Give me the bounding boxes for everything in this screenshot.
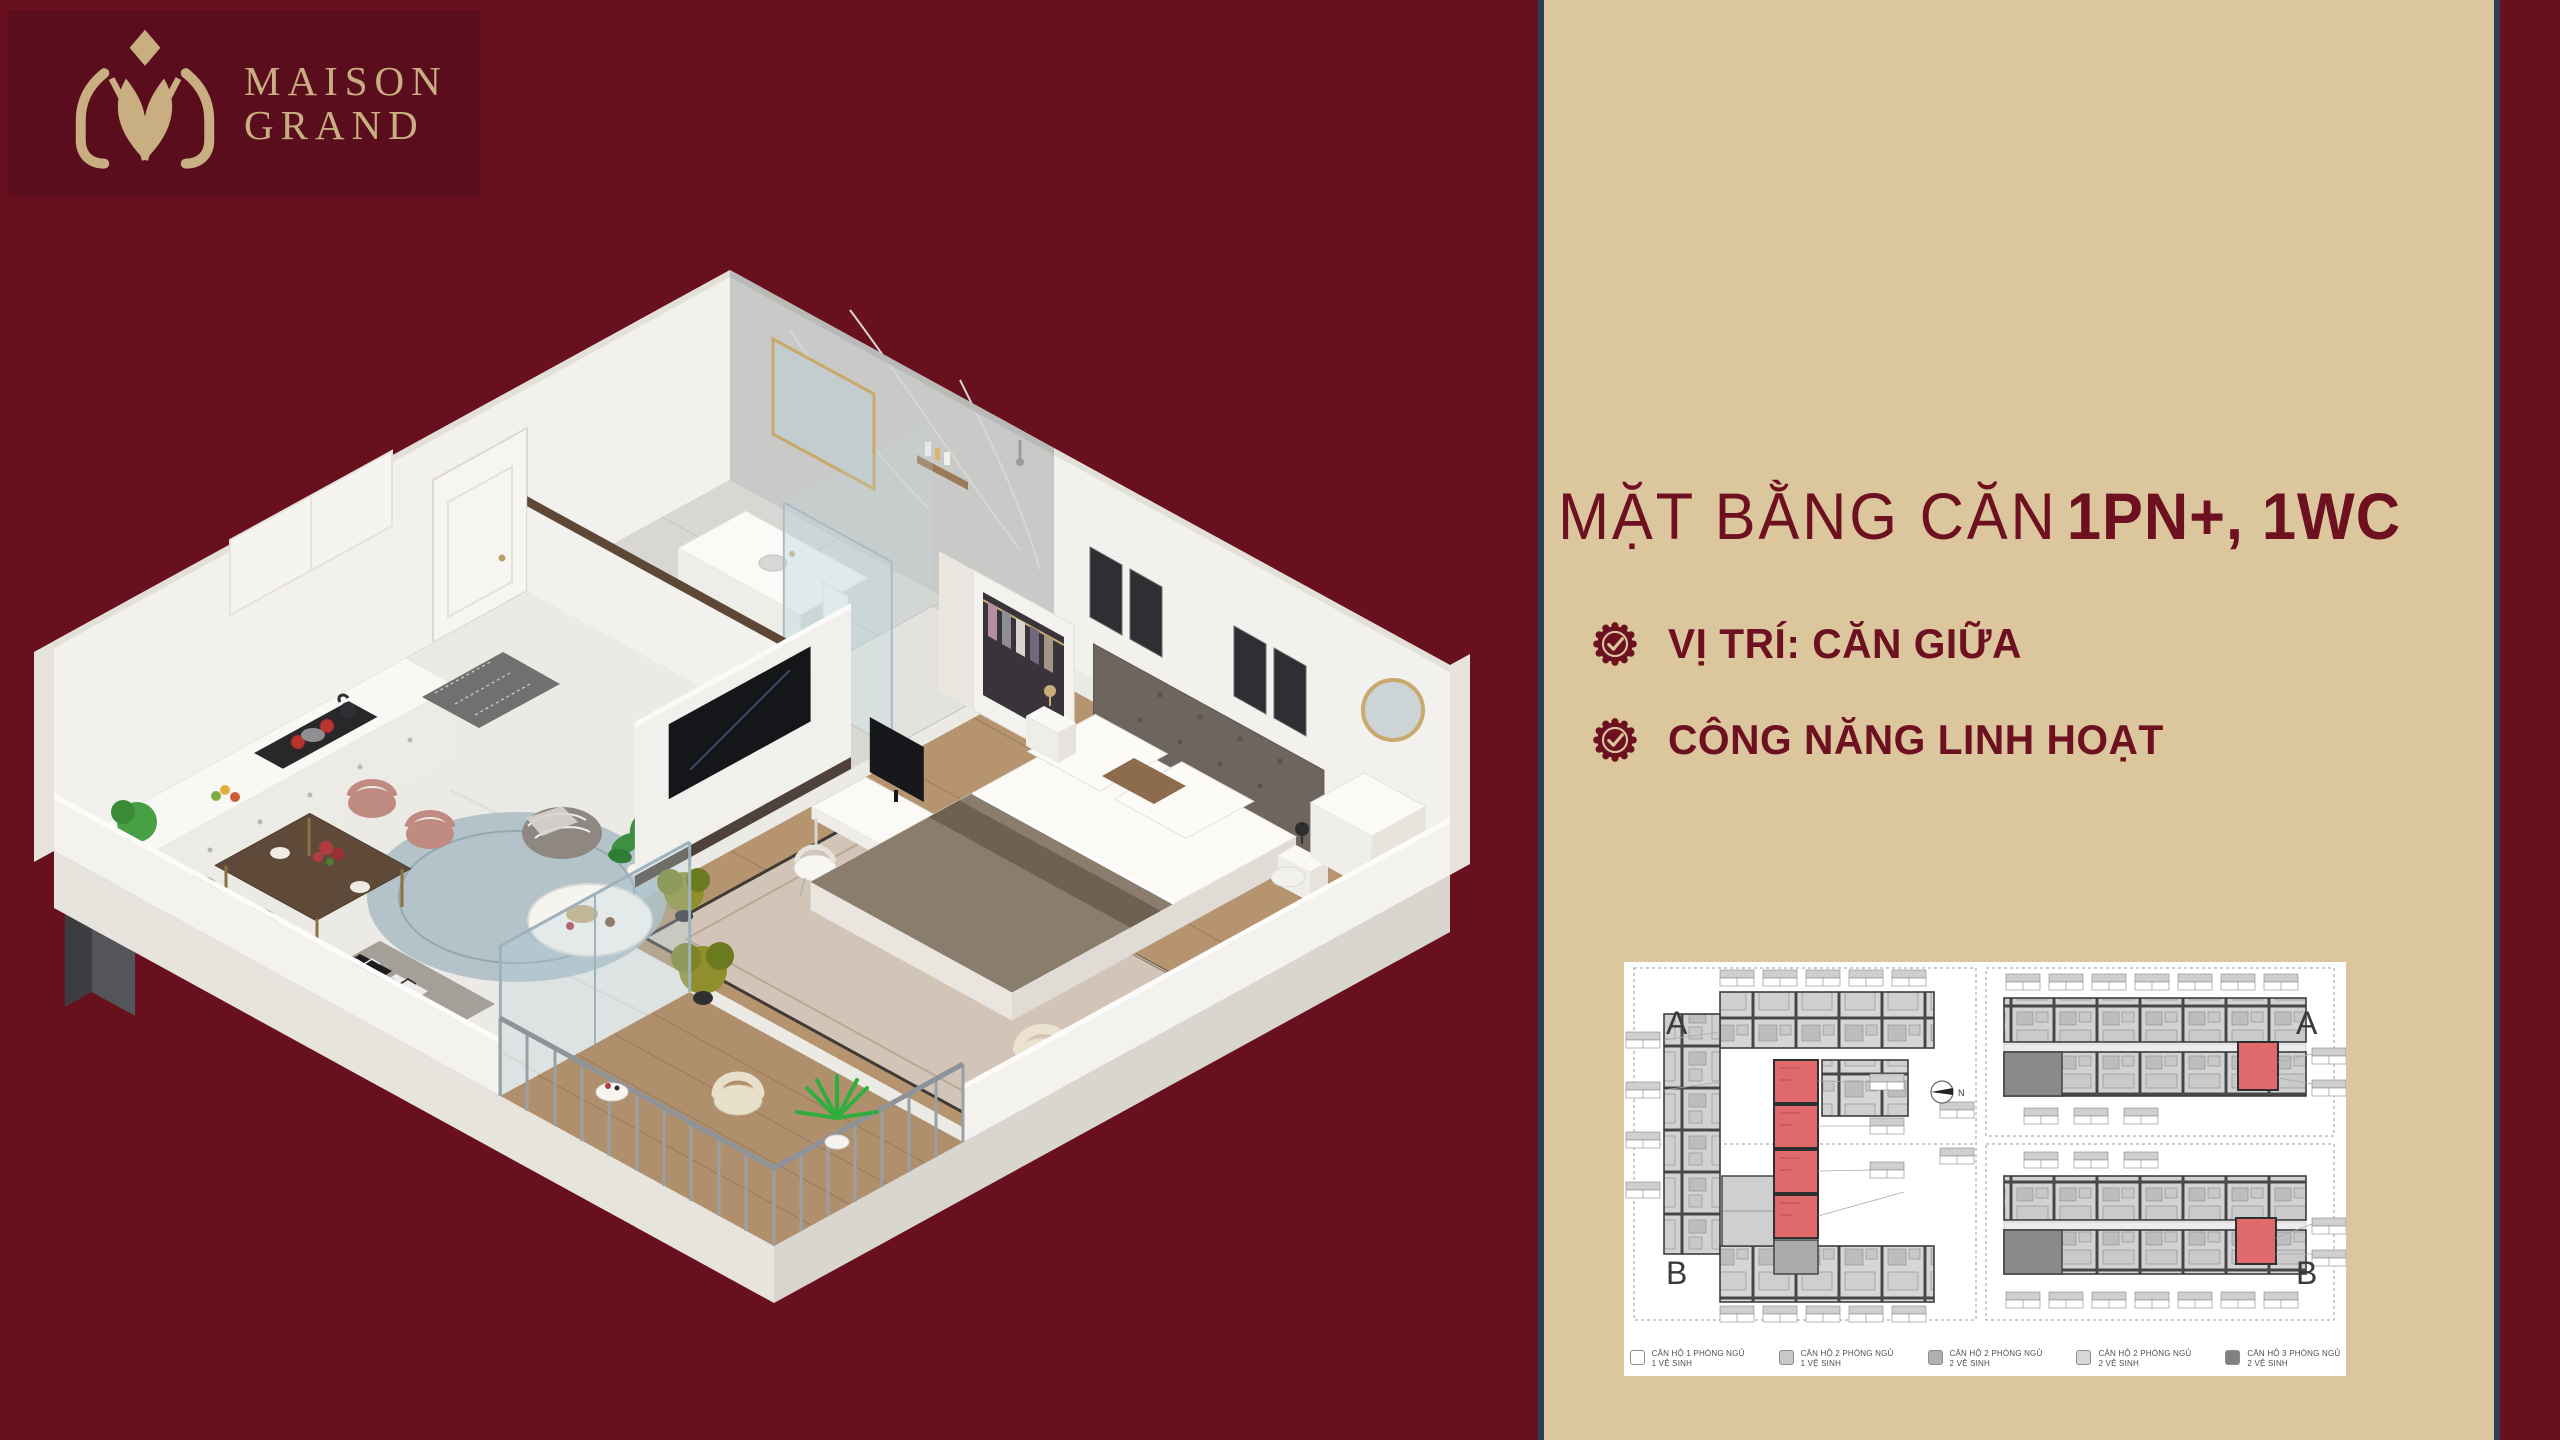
- brand-line1: MAISON: [244, 59, 448, 103]
- brand-line2: GRAND: [244, 103, 448, 147]
- legend-swatch: [1928, 1350, 1943, 1365]
- tower-left-label-b: B: [1666, 1255, 1687, 1291]
- plan-tower-right: [2004, 974, 2346, 1308]
- floorplan-legend: CĂN HỘ 1 PHÒNG NGỦ1 VỆ SINH CĂN HỘ 2 PHÒ…: [1624, 1349, 2346, 1369]
- apartment-3d-render: [30, 150, 1490, 1440]
- feature-list: VỊ TRÍ: CĂN GIỮA CÔNG NĂN: [1592, 620, 2179, 764]
- check-badge-icon: [1592, 621, 1638, 667]
- legend-label: CĂN HỘ 2 PHÒNG NGỦ1 VỆ SINH: [1801, 1349, 1894, 1369]
- legend-swatch: [1630, 1350, 1645, 1365]
- feature-row-location: VỊ TRÍ: CĂN GIỮA: [1592, 620, 2179, 668]
- legend-item: CĂN HỘ 1 PHÒNG NGỦ1 VỆ SINH: [1630, 1349, 1745, 1369]
- page-title: MẶT BẰNG CĂN1PN+, 1WC: [1558, 478, 2401, 554]
- plan-highlight-unit-right-b: [2236, 1218, 2276, 1264]
- legend-label: CĂN HỘ 1 PHÒNG NGỦ1 VỆ SINH: [1652, 1349, 1745, 1369]
- legend-label: CĂN HỘ 3 PHÒNG NGỦ2 VỆ SINH: [2247, 1349, 2340, 1369]
- legend-swatch: [2225, 1350, 2240, 1365]
- title-bold: 1PN+, 1WC: [2067, 479, 2401, 553]
- legend-swatch: [2076, 1350, 2091, 1365]
- legend-label: CĂN HỘ 2 PHÒNG NGỦ2 VỆ SINH: [2098, 1349, 2191, 1369]
- tower-right-label-b: B: [2296, 1255, 2317, 1291]
- floorplan-diagram: N A B A B: [1624, 962, 2346, 1334]
- north-compass-icon: N: [1931, 1081, 1965, 1103]
- legend-label: CĂN HỘ 2 PHÒNG NGỦ2 VỆ SINH: [1950, 1349, 2043, 1369]
- plan-highlight-units-left: [1774, 1060, 1818, 1238]
- compass-label: N: [1958, 1088, 1965, 1098]
- floorplan-card: N A B A B CĂN HỘ 1 PHÒNG NGỦ1 VỆ SINH: [1624, 962, 2346, 1376]
- feature-label-location: VỊ TRÍ: CĂN GIỮA: [1668, 620, 2022, 668]
- plan-highlight-unit-right-a: [2238, 1042, 2278, 1090]
- feature-label-function: CÔNG NĂNG LINH HOẠT: [1668, 716, 2164, 764]
- feature-row-function: CÔNG NĂNG LINH HOẠT: [1592, 716, 2179, 764]
- tower-left-label-a: A: [1666, 1005, 1688, 1041]
- legend-item: CĂN HỘ 2 PHÒNG NGỦ1 VỆ SINH: [1779, 1349, 1894, 1369]
- legend-item: CĂN HỘ 2 PHÒNG NGỦ2 VỆ SINH: [2076, 1349, 2191, 1369]
- check-badge-icon: [1592, 717, 1638, 763]
- title-regular: MẶT BẰNG CĂN: [1558, 479, 2058, 553]
- legend-item: CĂN HỘ 3 PHÒNG NGỦ2 VỆ SINH: [2225, 1349, 2340, 1369]
- brand-wordmark: MAISON GRAND: [244, 59, 448, 148]
- legend-item: CĂN HỘ 2 PHÒNG NGỦ2 VỆ SINH: [1928, 1349, 2043, 1369]
- info-panel: MẶT BẰNG CĂN1PN+, 1WC VỊ T: [1538, 0, 2500, 1440]
- legend-swatch: [1779, 1350, 1794, 1365]
- slide: MAISON GRAND: [0, 0, 2560, 1440]
- tower-right-label-a: A: [2296, 1005, 2318, 1041]
